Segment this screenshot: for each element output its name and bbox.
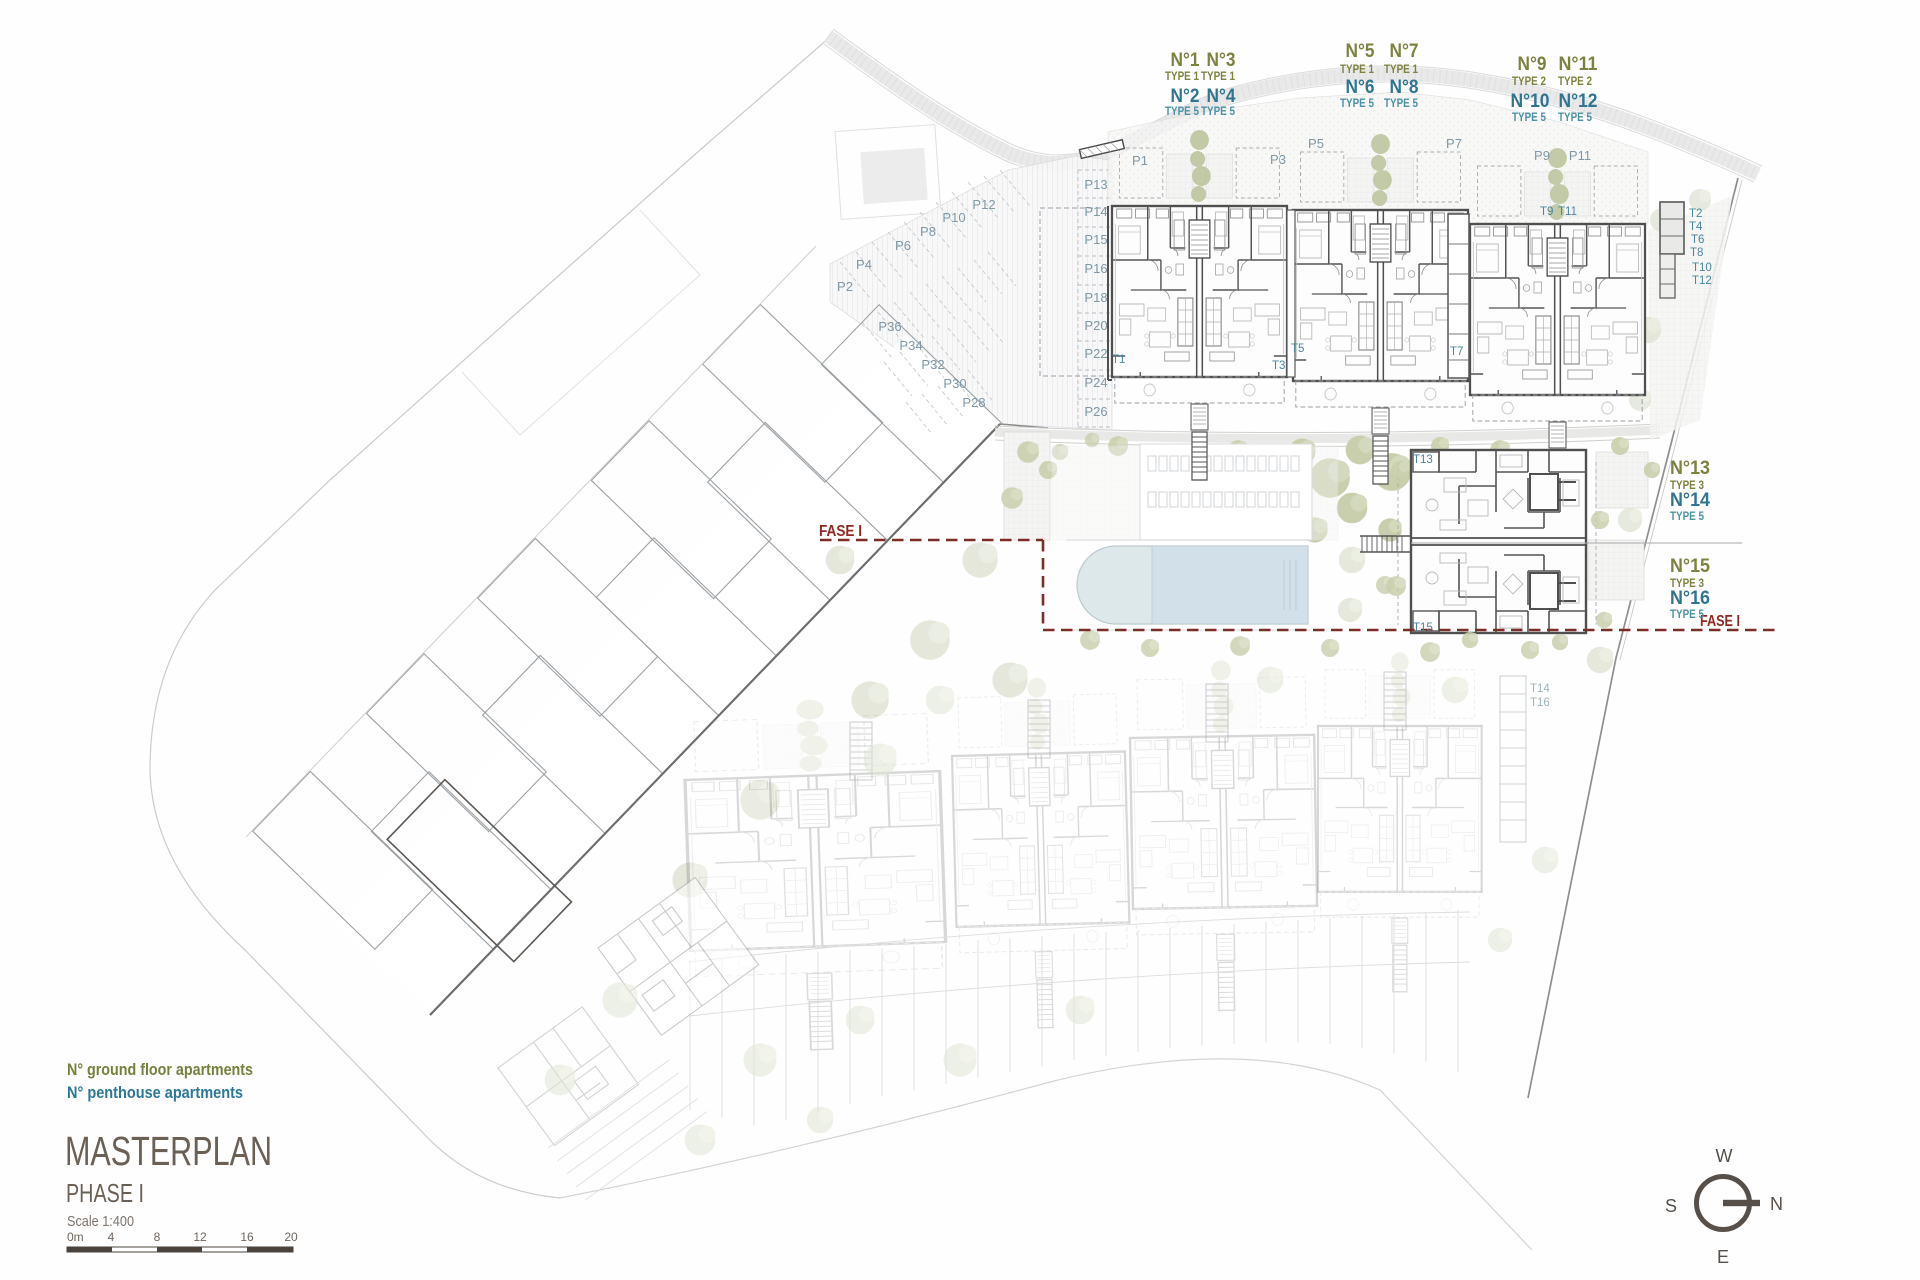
svg-text:P18: P18 bbox=[1084, 290, 1107, 305]
svg-text:P28: P28 bbox=[962, 395, 985, 410]
svg-text:FASE I: FASE I bbox=[819, 523, 862, 540]
svg-text:P30: P30 bbox=[943, 376, 966, 391]
svg-text:P11: P11 bbox=[1569, 148, 1591, 163]
svg-text:T11: T11 bbox=[1558, 206, 1577, 218]
svg-text:T10: T10 bbox=[1692, 262, 1712, 274]
svg-text:TYPE 5: TYPE 5 bbox=[1558, 110, 1592, 124]
svg-text:PHASE I: PHASE I bbox=[66, 1178, 144, 1208]
svg-text:N°16: N°16 bbox=[1670, 588, 1710, 609]
svg-text:P2: P2 bbox=[837, 279, 853, 294]
svg-text:P20: P20 bbox=[1084, 318, 1107, 333]
svg-text:T9: T9 bbox=[1540, 206, 1553, 218]
svg-text:T5: T5 bbox=[1291, 343, 1304, 355]
svg-text:P4: P4 bbox=[856, 257, 872, 272]
svg-text:P9: P9 bbox=[1534, 148, 1550, 163]
svg-text:T2: T2 bbox=[1689, 208, 1702, 220]
svg-text:P5: P5 bbox=[1308, 136, 1324, 151]
svg-text:P32: P32 bbox=[921, 357, 944, 372]
svg-text:N°14: N°14 bbox=[1670, 490, 1710, 511]
svg-text:TYPE 1: TYPE 1 bbox=[1384, 62, 1418, 76]
svg-text:TYPE 5: TYPE 5 bbox=[1165, 104, 1199, 118]
svg-text:16: 16 bbox=[240, 1230, 254, 1244]
svg-text:P15: P15 bbox=[1084, 232, 1107, 247]
svg-text:P26: P26 bbox=[1084, 404, 1107, 419]
svg-text:P22: P22 bbox=[1084, 346, 1107, 361]
svg-text:N° ground floor apartments: N° ground floor apartments bbox=[67, 1060, 253, 1079]
svg-text:TYPE 1: TYPE 1 bbox=[1165, 69, 1199, 83]
svg-text:T15: T15 bbox=[1413, 622, 1433, 634]
svg-text:0m: 0m bbox=[67, 1230, 84, 1244]
svg-text:P3: P3 bbox=[1270, 152, 1286, 167]
svg-text:N: N bbox=[1770, 1194, 1783, 1214]
svg-text:N°7: N°7 bbox=[1390, 41, 1419, 62]
svg-text:S: S bbox=[1665, 1196, 1677, 1216]
svg-text:N°11: N°11 bbox=[1559, 54, 1598, 75]
svg-text:P12: P12 bbox=[972, 197, 995, 212]
svg-text:P13: P13 bbox=[1084, 177, 1107, 192]
svg-text:TYPE 1: TYPE 1 bbox=[1201, 69, 1235, 83]
svg-text:TYPE 2: TYPE 2 bbox=[1512, 74, 1546, 88]
svg-text:TYPE 5: TYPE 5 bbox=[1670, 607, 1704, 621]
svg-text:TYPE 5: TYPE 5 bbox=[1384, 96, 1418, 110]
svg-text:E: E bbox=[1717, 1247, 1729, 1267]
svg-text:N°1: N°1 bbox=[1171, 50, 1200, 71]
svg-text:TYPE 5: TYPE 5 bbox=[1670, 509, 1704, 523]
svg-text:T6: T6 bbox=[1691, 234, 1704, 246]
svg-text:T13: T13 bbox=[1413, 454, 1433, 466]
svg-text:T8: T8 bbox=[1690, 247, 1703, 259]
svg-text:T12: T12 bbox=[1692, 275, 1712, 287]
svg-text:P6: P6 bbox=[895, 238, 911, 253]
svg-text:12: 12 bbox=[193, 1230, 207, 1244]
svg-text:N°10: N°10 bbox=[1511, 91, 1550, 112]
svg-text:TYPE 5: TYPE 5 bbox=[1340, 96, 1374, 110]
svg-text:FASE I: FASE I bbox=[1700, 613, 1740, 630]
svg-text:TYPE 2: TYPE 2 bbox=[1558, 74, 1592, 88]
svg-text:P36: P36 bbox=[878, 319, 901, 334]
svg-text:P8: P8 bbox=[920, 224, 936, 239]
svg-text:N°12: N°12 bbox=[1559, 91, 1598, 112]
svg-text:TYPE 5: TYPE 5 bbox=[1201, 104, 1235, 118]
svg-text:P7: P7 bbox=[1446, 136, 1462, 151]
svg-text:8: 8 bbox=[154, 1230, 161, 1244]
svg-text:N°13: N°13 bbox=[1670, 458, 1710, 479]
svg-text:P24: P24 bbox=[1084, 375, 1107, 390]
svg-text:W: W bbox=[1716, 1146, 1733, 1166]
svg-text:T4: T4 bbox=[1689, 221, 1703, 233]
svg-text:P1: P1 bbox=[1132, 153, 1148, 168]
svg-text:N°15: N°15 bbox=[1670, 556, 1710, 577]
svg-text:T1: T1 bbox=[1112, 354, 1125, 366]
svg-text:T3: T3 bbox=[1272, 360, 1285, 372]
svg-text:N°9: N°9 bbox=[1518, 54, 1547, 75]
svg-text:P34: P34 bbox=[899, 338, 922, 353]
svg-text:T7: T7 bbox=[1450, 346, 1463, 358]
svg-text:20: 20 bbox=[284, 1230, 298, 1244]
svg-text:MASTERPLAN: MASTERPLAN bbox=[65, 1128, 272, 1174]
svg-text:P16: P16 bbox=[1084, 261, 1107, 276]
svg-text:Scale 1:400: Scale 1:400 bbox=[67, 1213, 134, 1230]
svg-text:N°5: N°5 bbox=[1346, 41, 1375, 62]
svg-text:P14: P14 bbox=[1084, 204, 1107, 219]
svg-text:TYPE 5: TYPE 5 bbox=[1512, 110, 1546, 124]
svg-text:N°3: N°3 bbox=[1207, 50, 1236, 71]
svg-text:N°8: N°8 bbox=[1390, 77, 1419, 98]
svg-text:4: 4 bbox=[108, 1230, 115, 1244]
svg-text:P10: P10 bbox=[942, 210, 965, 225]
svg-text:N°6: N°6 bbox=[1346, 77, 1375, 98]
svg-text:T14: T14 bbox=[1530, 683, 1550, 695]
svg-text:TYPE 1: TYPE 1 bbox=[1340, 62, 1374, 76]
svg-text:N° penthouse apartments: N° penthouse apartments bbox=[67, 1083, 243, 1102]
svg-text:T16: T16 bbox=[1530, 697, 1550, 709]
